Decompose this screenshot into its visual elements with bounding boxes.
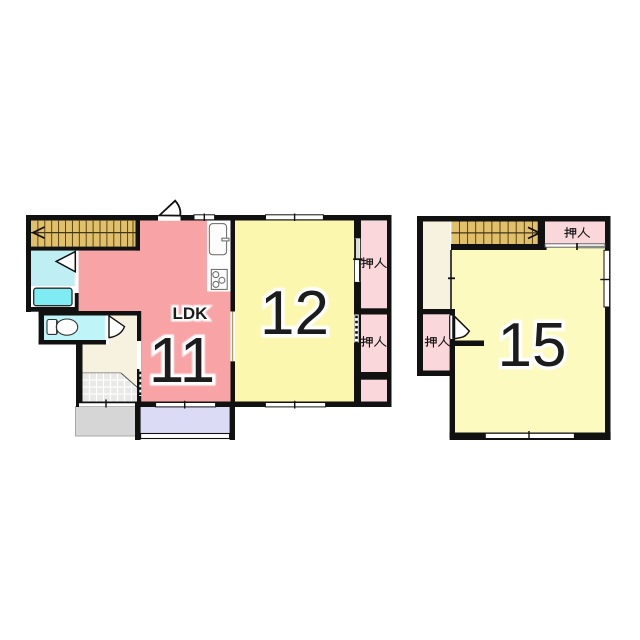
svg-text:11: 11	[149, 324, 215, 396]
svg-text:LDK: LDK	[173, 304, 209, 323]
svg-text:15: 15	[498, 311, 567, 380]
svg-text:12: 12	[260, 279, 329, 348]
